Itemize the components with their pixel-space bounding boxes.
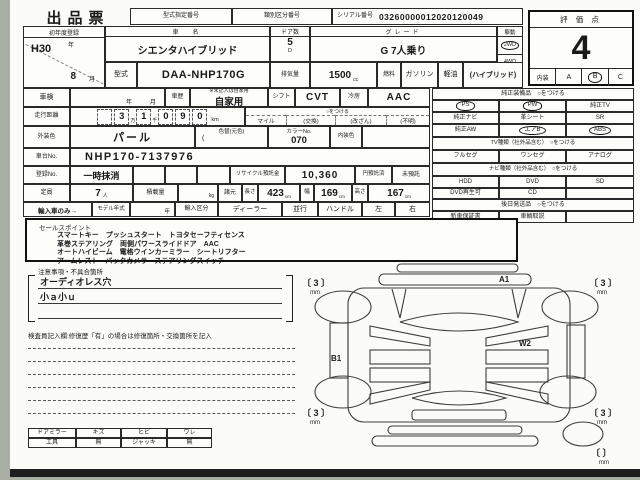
tv-oneseg-option: ワンセグ	[499, 150, 566, 163]
drive-label: 駆動	[498, 27, 522, 37]
windshield	[400, 313, 518, 331]
equipment-genuine-wheels: 純正AW	[432, 124, 499, 137]
interior-grade-a: A	[555, 69, 581, 86]
notes-line-3	[38, 306, 282, 319]
damage-mark-a1: A1	[499, 275, 510, 284]
notes-section-label: 注意事項・不具合箇所	[38, 266, 103, 276]
drive-2wd-selected: 2WD	[501, 41, 519, 50]
mileage-digit-6: 0	[192, 109, 207, 125]
front-left-tire	[315, 291, 371, 323]
shift-value: CVT	[295, 88, 340, 107]
height-unit: cm	[405, 194, 411, 199]
history-value: 自家用	[215, 94, 244, 107]
registration-status: 一時抹消	[70, 166, 133, 184]
color-number-label: カラーNo.	[286, 127, 311, 135]
tread-unit-label: mm	[310, 420, 320, 426]
car-name-label: 車 名	[106, 27, 269, 37]
recycle-deposit-label: リサイクル預託金	[230, 166, 285, 184]
shaken-label: 車検	[23, 88, 70, 107]
handle-label: ハンドル	[318, 202, 362, 217]
fuel-hybrid-note: (ハイブリッド)	[463, 62, 523, 88]
right-door-panel-1	[486, 350, 548, 364]
inspector-entry-line[interactable]	[28, 361, 295, 362]
car-name-value: シエンタハイブリッド	[138, 37, 238, 61]
first-registration-year: H30	[31, 43, 51, 55]
recycle-not-deposited-label: 未預託	[392, 166, 430, 184]
tv-type-header: TV種類（社外品含む） ○をつける	[432, 137, 634, 150]
width-label: 幅	[300, 184, 314, 202]
doors-label: ドア数	[271, 27, 309, 37]
model-code-value: DAA-NHP170G	[137, 62, 270, 88]
length-value: 423	[267, 188, 284, 199]
equipment-leather-seat: 革シート	[499, 112, 566, 124]
inspector-entry-line[interactable]	[28, 374, 295, 375]
sales-points-label: セールスポイント	[27, 220, 516, 232]
right-door-panel-2	[486, 368, 548, 382]
tread-unit-label: mm	[597, 420, 607, 426]
classification-number-label: 類別区分番号	[232, 8, 332, 25]
import-division-label: 輸入区分	[175, 202, 218, 217]
tread-rear-left: 〔 3 〕	[302, 408, 330, 418]
rear-right-tire	[540, 376, 596, 408]
chassis-number-label: 車台No.	[23, 148, 70, 166]
year-unit: 年	[68, 40, 74, 49]
later-shipment-header: 後日発送品 ○をつける	[432, 199, 634, 211]
mileage-man-unit: 万	[130, 117, 135, 124]
mileage-digit-2: 3	[114, 109, 129, 125]
exterior-color-label: 外装色	[23, 126, 70, 148]
recycle-deposited-label: 円預託済	[355, 166, 392, 184]
left-door-panel-1	[370, 350, 430, 364]
damage-mark-b1: B1	[331, 354, 342, 363]
tools-label: 工具	[28, 438, 76, 448]
displacement-label: 排気量	[270, 62, 310, 88]
fuel-diesel: 軽油	[438, 62, 463, 88]
interior-color-label: 内装色	[330, 126, 362, 148]
width-value: 169	[321, 188, 338, 199]
model-year-label: モデル年式	[92, 202, 130, 217]
front-bumper-bar	[397, 264, 518, 272]
inspector-entry-line[interactable]	[28, 348, 295, 349]
length-unit: cm	[285, 194, 291, 199]
scan-edge-bottom	[10, 469, 640, 477]
sales-point-line: 革巻ステアリング 両側パワースライドドア AAC	[57, 241, 516, 250]
import-only-label: 輸入車のみ→	[23, 202, 92, 217]
equipment-genuine-navi: 純正ナビ	[432, 112, 499, 124]
mirror-split-option: ワレ	[167, 428, 212, 438]
registration-empty-1	[133, 166, 165, 184]
mileage-digit-1	[97, 109, 112, 125]
tv-fullseg-option: フルセグ	[432, 150, 499, 163]
mirror-scratch-option: キズ	[76, 428, 121, 438]
mileage-circle-note: ○をつける	[326, 108, 349, 115]
score-value: 4	[530, 28, 632, 68]
mileage-digit-4: 0	[158, 109, 173, 125]
ac-value: AAC	[368, 88, 430, 107]
month-unit: 月	[89, 74, 95, 83]
tread-unit-label: mm	[597, 290, 607, 296]
grade-label: グレード	[311, 27, 496, 37]
car-diagram: A1 W2 B1 〔 3 〕 〔 3 〕 〔 3 〕 〔 3 〕 〔 〕 mm …	[300, 258, 636, 468]
score-label: 評 価 点	[530, 12, 632, 28]
notes-bracket-right	[286, 275, 293, 322]
interior-color-value	[362, 126, 430, 148]
grade-value: G 7人乗り	[380, 37, 426, 61]
a-pillar-left	[392, 289, 406, 318]
recolor-label: 色替(元色)	[219, 127, 245, 135]
tread-front-right: 〔 3 〕	[589, 278, 617, 288]
mileage-label: 走行距離	[23, 107, 70, 126]
exterior-color-value: パール	[70, 126, 195, 148]
tread-unit-label: mm	[310, 290, 320, 296]
left-rocker-panel	[330, 323, 348, 378]
first-registration-label: 初年度登録	[24, 27, 104, 38]
mileage-option-tampered: (改ざん)	[335, 115, 386, 125]
inspector-entry-line[interactable]	[28, 400, 295, 401]
width-unit: cm	[339, 194, 345, 199]
capacity-value: 7	[95, 188, 101, 199]
rear-left-tire	[315, 376, 371, 408]
capacity-label: 定員	[23, 184, 70, 202]
equipment-ps-selected: PS	[456, 101, 474, 110]
first-registration-month: 8	[70, 71, 76, 82]
model-designation-number-label: 型式指定番号	[130, 8, 232, 25]
height-value: 167	[387, 188, 404, 199]
registration-number-label: 登録No.	[23, 166, 70, 184]
chassis-number-value: NHP170-7137976	[70, 148, 430, 166]
genuine-equipment-header: 純正装備品 ○をつける	[432, 88, 634, 100]
a-pillar-right	[512, 289, 526, 318]
notes-line-2: 小ａ小ｕ	[38, 291, 282, 304]
jack-value: 無	[167, 438, 212, 448]
sales-point-line: スマートキー プッシュスタート トヨタセーフティセンス	[57, 232, 516, 241]
score-box: 評 価 点 4 内装 A B C	[528, 10, 634, 86]
navi-hdd-option: HDD	[432, 176, 499, 188]
tools-value: 無	[76, 438, 121, 448]
notes-line-1: オーディオレス穴	[38, 276, 282, 289]
left-front-door-glass	[370, 326, 430, 346]
dimensions-label: 諸元	[218, 184, 242, 202]
jack-label: ジャッキ	[121, 438, 167, 448]
displacement-value: 1500	[329, 70, 351, 81]
ac-label: 冷房	[340, 88, 368, 107]
tread-spare: 〔 〕	[591, 448, 612, 458]
fuel-gasoline: ガソリン	[401, 62, 438, 88]
mileage-sen-unit: 千	[152, 117, 157, 124]
capacity-unit: 人	[103, 192, 108, 199]
empty-cell	[566, 188, 634, 199]
mirror-crack-option: ヒビ	[121, 428, 167, 438]
inspector-entry-label: 検査員記入欄:修復歴「有」の場合は修復箇所・交換箇所を記入	[28, 330, 212, 340]
registration-empty-3	[197, 166, 230, 184]
mileage-digit-5: 9	[175, 109, 190, 125]
shift-label: シフト	[268, 88, 295, 107]
damage-mark-w2: W2	[519, 339, 532, 348]
handle-right-option: 右	[395, 202, 430, 217]
mileage-option-unknown: (不明)	[386, 115, 429, 125]
interior-grade-c: C	[608, 69, 632, 86]
cd-option: CD	[499, 188, 566, 199]
rear-bumper-bar	[388, 426, 522, 434]
mileage-digit-3: 1	[136, 109, 151, 125]
shaken-year-unit: 年	[126, 97, 132, 106]
interior-grade-b-selected: B	[588, 72, 603, 82]
mileage-option-mile: マイル	[246, 115, 286, 125]
mileage-option-exchange: (交換)	[286, 115, 335, 125]
notes-bracket-left	[28, 275, 35, 322]
navi-type-header: ナビ種類（社外品含む） ○をつける	[432, 163, 634, 176]
door-mirror-label: ドアミラー	[28, 428, 76, 438]
fuel-label: 燃料	[377, 62, 401, 88]
equipment-airbag-selected: エアB	[519, 126, 545, 135]
model-year-unit: 年	[164, 207, 170, 215]
equipment-abs-selected: ABS	[589, 126, 611, 135]
serial-number-label: シリアル番号	[337, 13, 373, 19]
rear-panel	[412, 410, 506, 420]
right-front-door-glass	[486, 326, 548, 346]
tv-analog-option: アナログ	[566, 150, 634, 163]
load-unit: kg	[209, 193, 214, 199]
inspector-entry-line[interactable]	[28, 387, 295, 388]
navi-sd-option: SD	[566, 176, 634, 188]
handle-left-option: 左	[362, 202, 395, 217]
empty-cell	[566, 211, 634, 223]
tread-rear-right: 〔 3 〕	[589, 408, 617, 418]
sales-points-box: セールスポイント スマートキー プッシュスタート トヨタセーフティセンス 革巻ス…	[25, 218, 518, 262]
doors-value: 5	[287, 37, 293, 48]
sales-point-line: オートハイビーム 電格ウインカーミラー シートリフター	[57, 249, 516, 258]
auction-sheet: 出品票 型式指定番号 類別区分番号 シリアル番号 032600000120201…	[0, 0, 640, 480]
tread-unit-label: mm	[599, 460, 609, 466]
equipment-genuine-tv: 純正TV	[566, 100, 634, 112]
registration-empty-2	[165, 166, 197, 184]
import-parallel-option: 並行	[282, 202, 318, 217]
color-number-value: 070	[291, 135, 307, 146]
recolor-paren: (	[196, 135, 204, 142]
import-dealer-option: ディーラー	[218, 202, 282, 217]
dvd-playable-option: DVD再生可	[432, 188, 499, 199]
rear-bumper	[372, 436, 538, 446]
equipment-sunroof: SR	[566, 112, 634, 124]
mileage-km-unit: km	[211, 117, 218, 123]
left-door-panel-2	[370, 368, 430, 382]
equipment-pw-selected: PW	[523, 101, 543, 110]
history-label: 車歴	[165, 88, 190, 107]
interior-grade-label: 内装	[530, 69, 555, 86]
navi-dvd-option: DVD	[499, 176, 566, 188]
model-code-label: 型式	[105, 62, 137, 88]
doors-unit: D	[288, 48, 292, 54]
rear-window	[412, 391, 506, 405]
height-label: 高さ	[352, 184, 368, 202]
inspector-entry-line[interactable]	[28, 413, 295, 414]
recycle-deposit-amount: 10,360	[285, 166, 355, 184]
serial-number-value: 03260000012020120049	[379, 12, 484, 22]
shaken-month-unit: 月	[150, 97, 156, 106]
length-label: 長さ	[242, 184, 258, 202]
load-label: 積載量	[133, 184, 178, 202]
tread-front-left: 〔 3 〕	[302, 278, 330, 288]
displacement-unit: cc	[353, 77, 358, 83]
